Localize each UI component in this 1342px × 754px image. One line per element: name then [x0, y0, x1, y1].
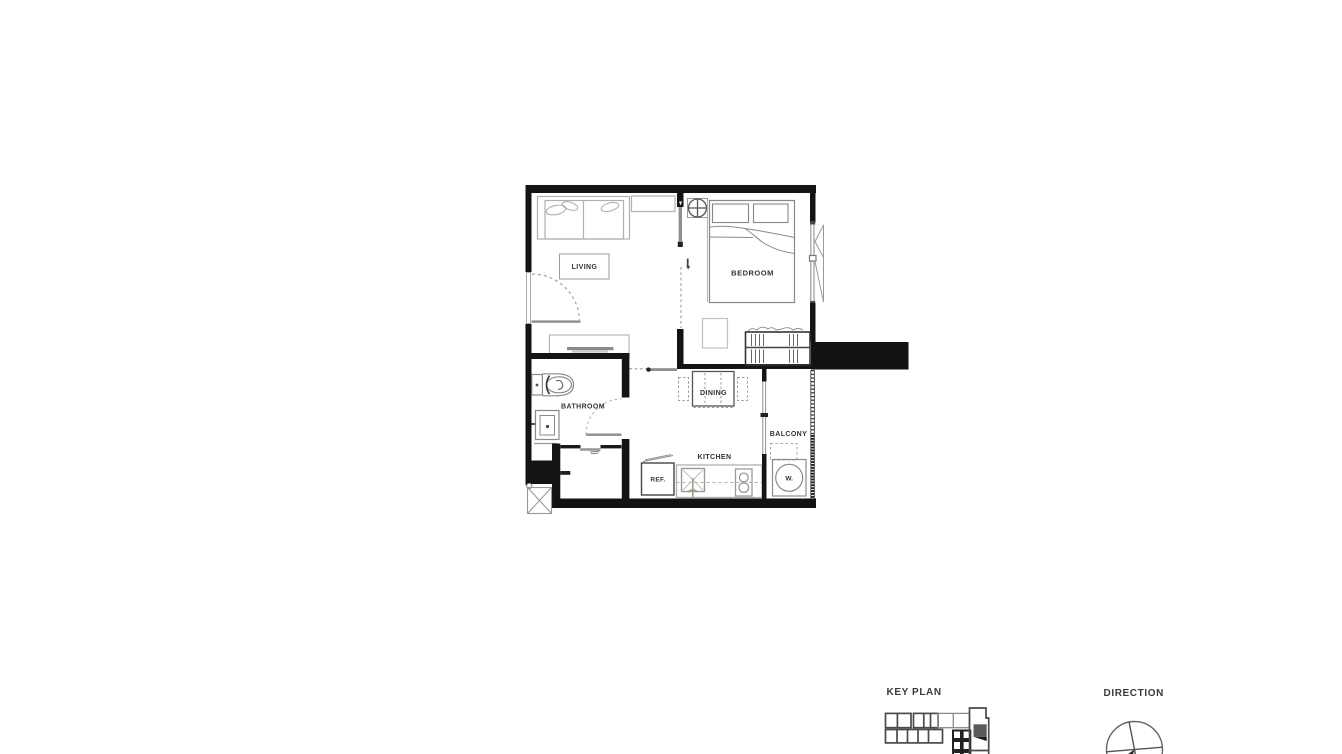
svg-text:REF.: REF. [650, 477, 665, 484]
svg-text:DIRECTION: DIRECTION [1104, 688, 1164, 699]
svg-text:DINING: DINING [700, 390, 727, 397]
svg-text:BEDROOM: BEDROOM [731, 269, 774, 278]
svg-text:BATHROOM: BATHROOM [561, 404, 605, 411]
svg-text:BALCONY: BALCONY [770, 431, 807, 438]
svg-text:LIVING: LIVING [572, 264, 598, 271]
svg-text:W.: W. [785, 476, 793, 483]
svg-text:KITCHEN: KITCHEN [698, 454, 732, 461]
svg-text:KEY PLAN: KEY PLAN [887, 687, 942, 698]
